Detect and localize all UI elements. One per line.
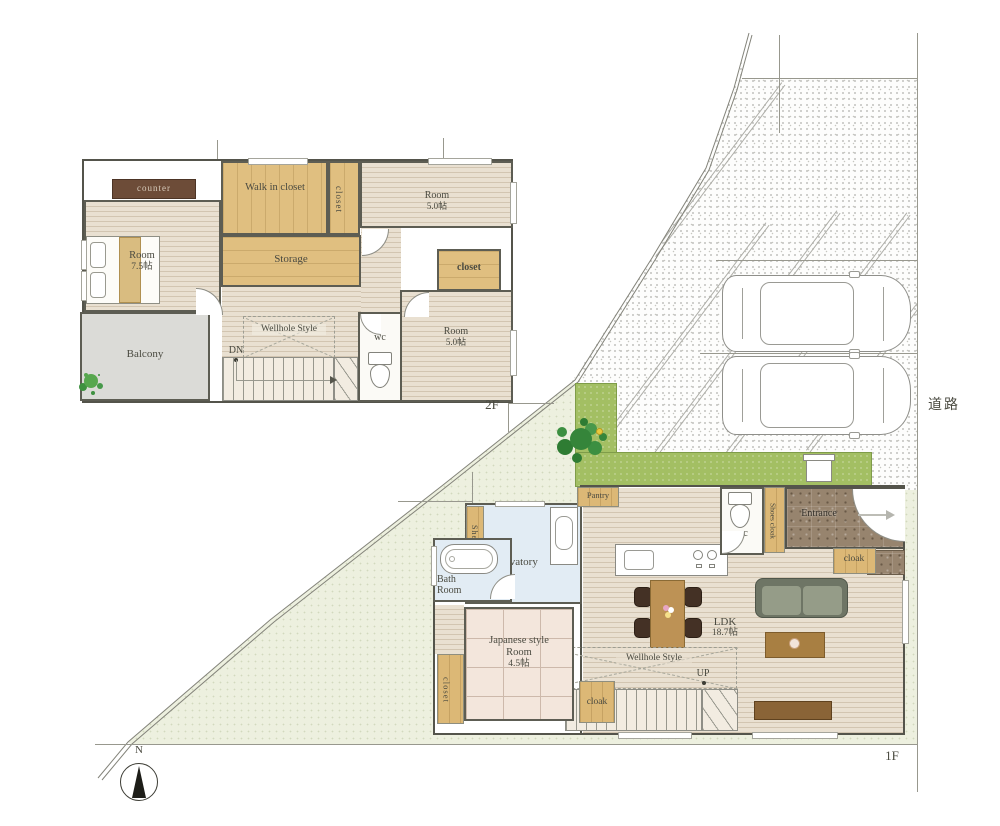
window <box>495 501 545 507</box>
counter-label: counter <box>112 183 196 193</box>
tv-board-icon <box>754 701 832 720</box>
stairs-1f-arrow-dot <box>702 681 706 685</box>
window <box>618 732 692 739</box>
floor2-tag: 2F <box>478 398 506 413</box>
compass-n-label: N <box>126 744 152 756</box>
walk-in-closet <box>221 161 328 235</box>
entrance-arrow-icon <box>858 514 888 516</box>
closet-west-label: closet <box>441 664 451 716</box>
car-icon <box>722 356 911 435</box>
ldk-label: LDK 18.7帖 <box>700 616 750 639</box>
wellhole-2f <box>243 316 335 358</box>
room-west-label: Room 7.5帖 <box>104 250 180 272</box>
toilet-icon <box>728 492 754 528</box>
wellhole-2f-label: Wellhole Style <box>252 324 326 335</box>
bathtub-icon <box>440 544 498 574</box>
window <box>81 240 87 270</box>
window <box>752 732 838 739</box>
cloak-east-label: cloak <box>831 554 877 565</box>
car-icon <box>722 275 911 352</box>
dn-label: DN <box>224 345 248 356</box>
walk-in-closet-label: Walk in closet <box>237 182 313 194</box>
wellhole-1f-label: Wellhole Style <box>616 653 692 664</box>
sink-icon <box>624 550 654 570</box>
hall-west-1f <box>435 605 464 654</box>
garden-tap-lip <box>803 454 835 461</box>
closet-top-label: closet <box>334 170 344 228</box>
bath-room-label: Bath Room <box>437 574 481 596</box>
up-label: UP <box>690 668 716 679</box>
window <box>902 580 909 644</box>
window <box>428 158 492 165</box>
dining-table-icon <box>650 580 685 648</box>
garden-tap <box>806 458 832 482</box>
stairs-2f-arrow <box>236 380 330 381</box>
japanese-room-label: Japanese style Room 4.5帖 <box>478 635 560 669</box>
stairs-2f <box>222 357 334 401</box>
guide-line <box>779 35 780 133</box>
pantry-label: Pantry <box>577 491 619 501</box>
floor-plan-canvas: Room 7.5帖 counter Walk in closet closet … <box>0 0 1000 826</box>
shoes-cloak-label: Shoes cloak <box>768 490 776 552</box>
guide-line <box>508 403 554 404</box>
tree-berry <box>596 428 603 435</box>
storage-label: Storage <box>241 253 341 265</box>
tree-icon <box>570 428 592 450</box>
entrance-label: Entrance <box>788 508 850 519</box>
coffee-table-plant <box>790 639 799 648</box>
room-southeast-label: Room 5.0帖 <box>427 326 485 347</box>
stairs-2f-arrowhead <box>330 376 337 384</box>
south-boundary-line <box>95 744 917 745</box>
window <box>510 182 517 224</box>
window <box>510 330 517 376</box>
road-label: 道路 <box>922 398 966 414</box>
guide-line <box>398 501 472 502</box>
chair-icon <box>684 587 702 607</box>
sofa-icon <box>755 578 848 618</box>
stairs-2f-winder <box>334 357 358 401</box>
room-northeast-label: Room 5.0帖 <box>408 190 466 211</box>
window <box>431 546 437 586</box>
window <box>81 271 87 301</box>
toilet-icon <box>368 352 394 392</box>
balcony-label: Balcony <box>100 348 190 360</box>
closet-mid-label: closet <box>437 262 501 273</box>
window <box>248 158 308 165</box>
stairs-1f-winder <box>702 689 738 731</box>
cloak-south-label: cloak <box>577 697 617 708</box>
table-flowers <box>663 605 669 611</box>
entrance-arrowhead <box>886 510 895 520</box>
stove-icon <box>692 548 722 574</box>
plant-icon <box>84 374 98 388</box>
road-boundary-line <box>917 33 918 792</box>
floor1-tag: 1F <box>878 749 906 764</box>
stairs-2f-arrow <box>236 360 237 380</box>
